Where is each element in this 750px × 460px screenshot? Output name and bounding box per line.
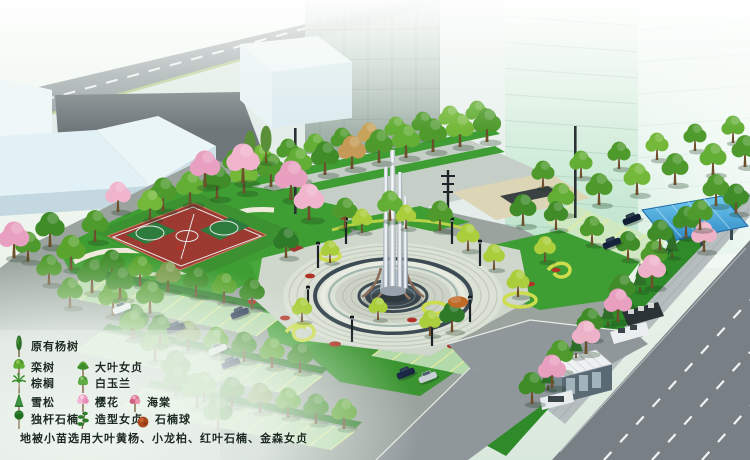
site-plan-scene: [0, 0, 750, 460]
landscape-plan-rendering: 原有杨树 栾树 大叶女贞 棕榈: [0, 0, 750, 460]
haze-bottom-left2: [0, 330, 220, 460]
haze-top: [0, 0, 750, 130]
